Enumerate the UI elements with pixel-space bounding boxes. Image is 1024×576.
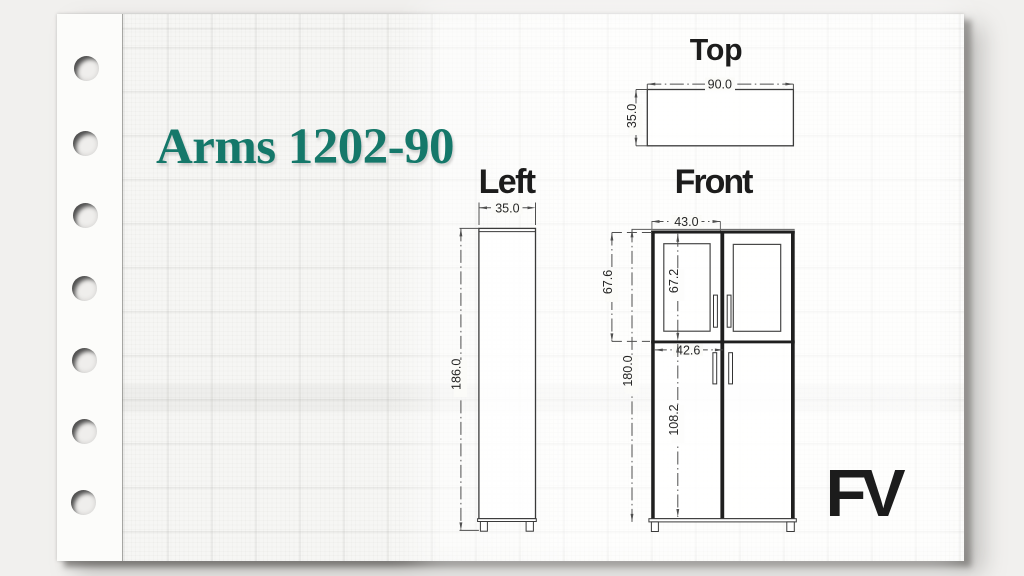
svg-text:180.0: 180.0 (621, 355, 635, 386)
svg-text:108.2: 108.2 (667, 404, 681, 435)
svg-text:186.0: 186.0 (449, 359, 463, 390)
svg-text:35.0: 35.0 (495, 201, 519, 215)
svg-text:43.0: 43.0 (674, 215, 698, 229)
svg-text:67.2: 67.2 (667, 269, 681, 293)
svg-text:67.6: 67.6 (601, 270, 615, 294)
svg-text:35.0: 35.0 (625, 104, 639, 128)
svg-text:90.0: 90.0 (708, 78, 732, 92)
svg-text:42.6: 42.6 (676, 343, 700, 357)
